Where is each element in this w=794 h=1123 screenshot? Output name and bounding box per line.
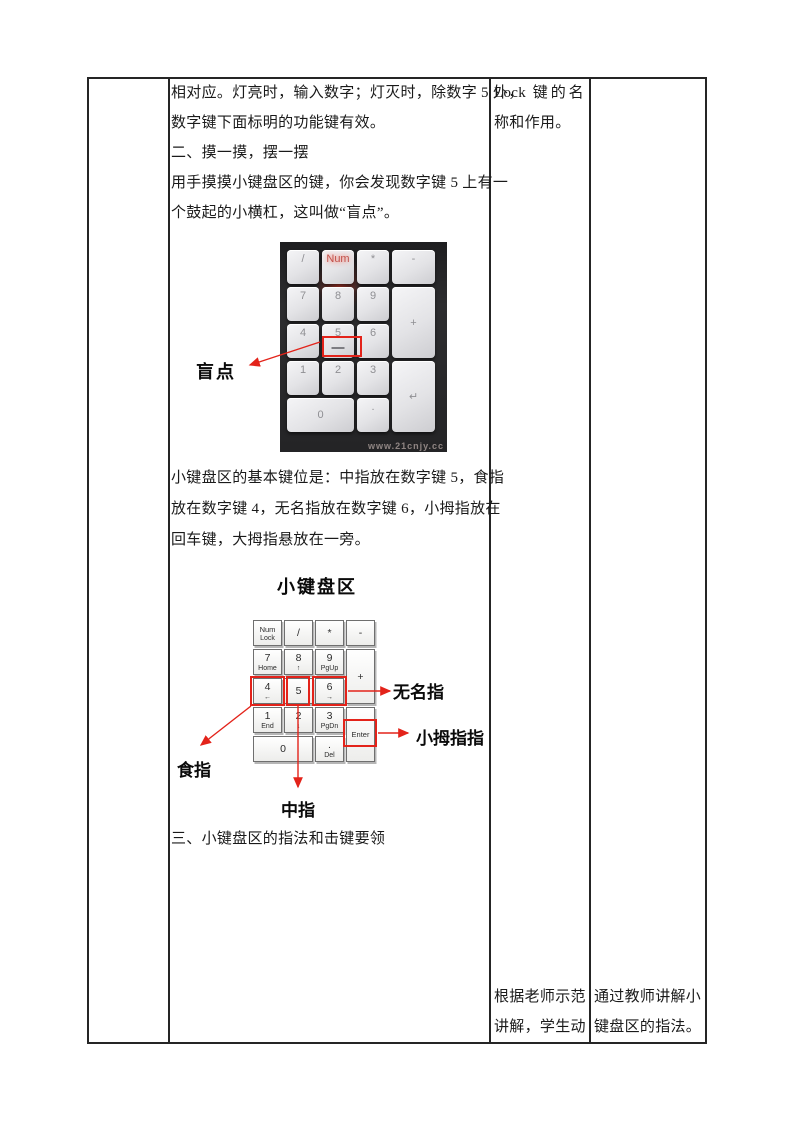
key-7: 7 [287,287,319,321]
text-line: 三、小键盘区的指法和击键要领 [171,824,385,854]
text-line: 根据老师示范 [494,982,584,1012]
index-finger-label: 食指 [177,756,211,781]
teacher-note-bottom: 根据老师示范讲解，学生动 [494,982,584,1042]
watermark-text: www.21cnjy.cc [368,441,444,451]
key6-highlight-box [312,676,347,706]
key--: - [392,250,435,284]
text-line: 小键盘区的基本键位是：中指放在数字键 5，食指 [171,463,504,494]
key-.: . [357,398,389,432]
text-line: 讲解，学生动 [494,1012,584,1042]
key-0: 0 [253,736,313,762]
teacher-note-top: Lock 键的名称和作用。 [494,78,584,138]
key-2: 2 [322,361,354,395]
key-/: / [287,250,319,284]
design-intent-note: 通过教师讲解小键盘区的指法。 [594,982,702,1042]
text-line: Lock 键的名 [494,78,584,108]
middle-finger-label: 中指 [281,796,315,821]
text-line: 用手摸摸小键盘区的键，你会发现数字键 5 上有一 [171,168,524,198]
key-↵: ↵ [392,361,435,432]
numeric-keypad-photo: /Num*-789+456123↵0. www.21cnjy.cc [280,242,447,452]
key5-highlight-box [286,676,310,706]
document-page: { "accent_red": "#e3231a", "table": { "c… [0,0,794,1123]
key-.: .Del [315,736,344,762]
key-9: 9PgUp [315,649,344,675]
key-+: + [346,649,375,704]
key-/: / [284,620,313,646]
key-3: 3 [357,361,389,395]
key-0: 0 [287,398,354,432]
key-+: + [392,287,435,358]
text-line: 键盘区的指法。 [594,1012,702,1042]
text-line: 相对应。灯亮时，输入数字；灯灭时，除数字 5 外， [171,78,524,108]
key-4: 4 [287,324,319,358]
text-line: 称和作用。 [494,108,584,138]
text-line: 个鼓起的小横杠，这叫做“盲点”。 [171,198,524,228]
key--: - [346,620,375,646]
key-Num: NumLock [253,620,282,646]
text-line: 回车键，大拇指悬放在一旁。 [171,525,504,556]
key4-highlight-box [250,676,285,706]
text-line: 数字键下面标明的功能键有效。 [171,108,524,138]
key-8: 8↑ [284,649,313,675]
key-1: 1 [287,361,319,395]
text-line: 放在数字键 4，无名指放在数字键 6，小拇指放在 [171,494,504,525]
key-9: 9 [357,287,389,321]
key-3: 3PgDn [315,707,344,733]
diagram-title: 小键盘区 [277,573,357,599]
key-position-paragraph: 小键盘区的基本键位是：中指放在数字键 5，食指放在数字键 4，无名指放在数字键 … [171,463,504,556]
key-Num: Num [322,250,354,284]
table-column-divider [168,79,170,1042]
blind-spot-label: 盲点 [196,358,236,384]
pinky-finger-label: 小拇指指 [416,724,484,749]
key-1: 1End [253,707,282,733]
teaching-content-paragraph: 相对应。灯亮时，输入数字；灯灭时，除数字 5 外，数字键下面标明的功能键有效。二… [171,78,524,228]
section-three-heading: 三、小键盘区的指法和击键要领 [171,824,385,854]
key-*: * [357,250,389,284]
ring-finger-label: 无名指 [393,678,444,703]
table-column-divider [589,79,591,1042]
key-8: 8 [322,287,354,321]
key-*: * [315,620,344,646]
blind-spot-highlight-box [322,336,362,357]
key-7: 7Home [253,649,282,675]
key-2: 2↓ [284,707,313,733]
text-line: 通过教师讲解小 [594,982,702,1012]
enter-key-highlight-box [343,719,377,747]
text-line: 二、摸一摸，摆一摆 [171,138,524,168]
